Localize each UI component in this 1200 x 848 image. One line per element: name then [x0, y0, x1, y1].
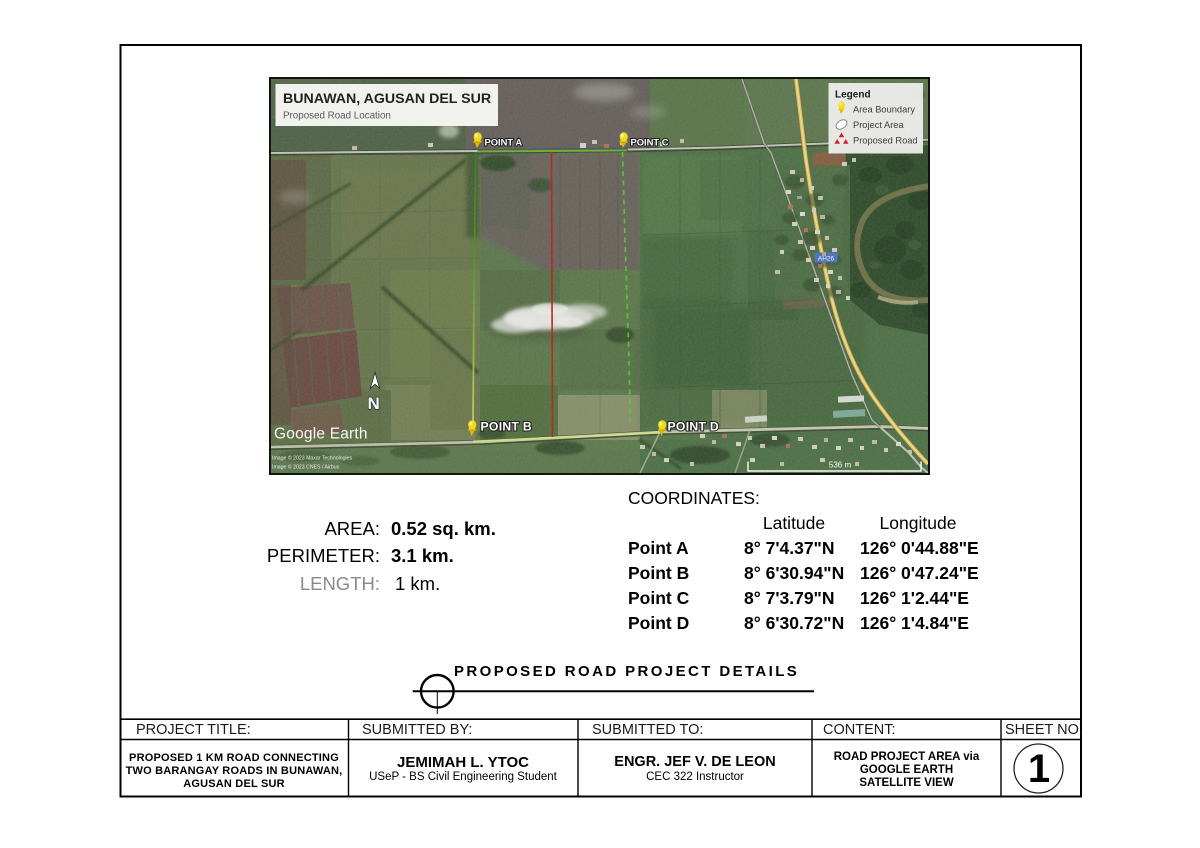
svg-text:POINT C: POINT C — [631, 137, 669, 148]
svg-text:Image © 2023 Maxar Technologie: Image © 2023 Maxar Technologies — [272, 455, 353, 462]
svg-text:Google Earth: Google Earth — [274, 426, 368, 443]
svg-text:N: N — [368, 394, 380, 413]
svg-text:POINT B: POINT B — [481, 420, 533, 434]
svg-text:POINT D: POINT D — [668, 420, 720, 434]
svg-text:Image © 2023 CNES / Airbus: Image © 2023 CNES / Airbus — [272, 464, 340, 471]
svg-text:536 m: 536 m — [829, 461, 852, 470]
svg-text:Legend: Legend — [835, 90, 871, 101]
svg-text:Area Boundary: Area Boundary — [853, 105, 915, 115]
svg-text:BUNAWAN, AGUSAN DEL SUR: BUNAWAN, AGUSAN DEL SUR — [283, 91, 491, 107]
svg-text:Proposed Road Location: Proposed Road Location — [283, 111, 391, 122]
svg-text:POINT A: POINT A — [485, 137, 523, 148]
svg-text:Proposed Road: Proposed Road — [853, 136, 918, 146]
svg-text:Project Area: Project Area — [853, 120, 904, 130]
